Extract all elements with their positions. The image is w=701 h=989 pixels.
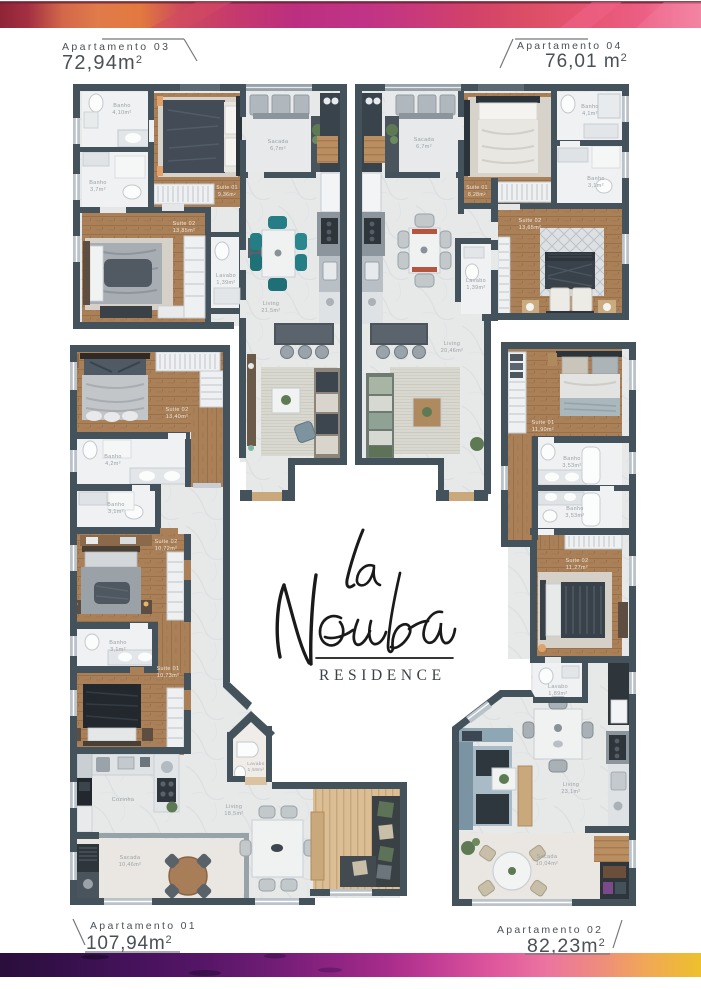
svg-text:Suite 02: Suite 02 — [566, 558, 589, 564]
svg-text:10,04m²: 10,04m² — [536, 861, 559, 867]
svg-text:3,53m²: 3,53m² — [565, 513, 584, 519]
svg-text:3,7m²: 3,7m² — [90, 187, 106, 193]
svg-text:Banho: Banho — [587, 176, 605, 182]
svg-text:Living: Living — [444, 341, 461, 347]
svg-text:Sacada: Sacada — [414, 137, 435, 143]
svg-text:6,7m²: 6,7m² — [416, 144, 432, 150]
svg-text:Banho: Banho — [113, 103, 131, 109]
svg-text:Banho: Banho — [104, 454, 122, 460]
svg-text:Suite 01: Suite 01 — [157, 666, 180, 672]
svg-text:Suite 01: Suite 01 — [216, 185, 238, 191]
svg-text:9,36m²: 9,36m² — [218, 192, 236, 198]
svg-text:4,1m²: 4,1m² — [582, 111, 598, 117]
svg-text:23,1m²: 23,1m² — [561, 789, 580, 795]
svg-text:3,1m²: 3,1m² — [588, 183, 604, 189]
svg-text:Banho: Banho — [566, 506, 584, 512]
svg-text:Sacada: Sacada — [120, 855, 141, 861]
svg-text:Banho: Banho — [581, 104, 599, 110]
svg-text:107,94m2: 107,94m2 — [86, 933, 172, 954]
svg-text:Sacada: Sacada — [268, 139, 289, 145]
svg-text:Living: Living — [263, 301, 280, 307]
svg-text:Lavabo: Lavabo — [216, 273, 236, 279]
svg-text:76,01 m2: 76,01 m2 — [545, 51, 628, 72]
svg-text:6,7m²: 6,7m² — [270, 146, 286, 152]
svg-text:10,46m²: 10,46m² — [119, 862, 142, 868]
svg-text:21,5m²: 21,5m² — [261, 308, 280, 314]
svg-text:RESIDENCE: RESIDENCE — [319, 667, 446, 684]
svg-text:13,85m²: 13,85m² — [173, 228, 196, 234]
svg-text:Sacada: Sacada — [537, 854, 558, 860]
svg-text:Apartamento 01: Apartamento 01 — [90, 920, 197, 932]
svg-text:10,73m²: 10,73m² — [157, 673, 180, 679]
svg-text:Suite 02: Suite 02 — [519, 218, 542, 224]
svg-text:3,1m²: 3,1m² — [108, 509, 124, 515]
svg-text:11,90m²: 11,90m² — [532, 427, 554, 433]
svg-text:Suite 02: Suite 02 — [173, 221, 196, 227]
svg-text:4,10m²: 4,10m² — [112, 110, 131, 116]
svg-text:10,72m²: 10,72m² — [155, 546, 178, 552]
svg-text:13,40m²: 13,40m² — [166, 414, 189, 420]
svg-text:Lavabo: Lavabo — [247, 761, 265, 766]
svg-text:Living: Living — [226, 804, 243, 810]
svg-text:1,59m²: 1,59m² — [248, 767, 265, 772]
svg-text:Banho: Banho — [107, 502, 125, 508]
svg-text:1,39m²: 1,39m² — [216, 280, 235, 286]
svg-text:8,28m²: 8,28m² — [468, 192, 486, 198]
svg-text:Lavabo: Lavabo — [548, 684, 568, 690]
svg-text:20,46m²: 20,46m² — [441, 348, 464, 354]
svg-text:Cozinha: Cozinha — [112, 797, 135, 803]
svg-text:Suite 02: Suite 02 — [155, 539, 178, 545]
svg-text:3,53m²: 3,53m² — [562, 463, 581, 469]
svg-text:4,2m²: 4,2m² — [105, 461, 121, 467]
svg-text:13,65m²: 13,65m² — [519, 225, 542, 231]
svg-text:18,5m²: 18,5m² — [224, 811, 243, 817]
svg-text:3,1m²: 3,1m² — [110, 647, 126, 653]
svg-text:Lavabo: Lavabo — [466, 278, 486, 284]
svg-text:Suite 01: Suite 01 — [532, 420, 555, 426]
svg-text:Living: Living — [563, 782, 580, 788]
svg-text:Banho: Banho — [89, 180, 107, 186]
svg-text:Banho: Banho — [563, 456, 581, 462]
svg-text:Suite 01: Suite 01 — [466, 185, 488, 191]
svg-text:1,89m²: 1,89m² — [548, 691, 567, 697]
svg-text:11,27m²: 11,27m² — [566, 565, 588, 571]
svg-text:1,39m²: 1,39m² — [466, 285, 485, 291]
svg-text:Suite 02: Suite 02 — [166, 407, 189, 413]
svg-text:Banho: Banho — [109, 640, 127, 646]
svg-text:72,94m2: 72,94m2 — [62, 52, 143, 74]
